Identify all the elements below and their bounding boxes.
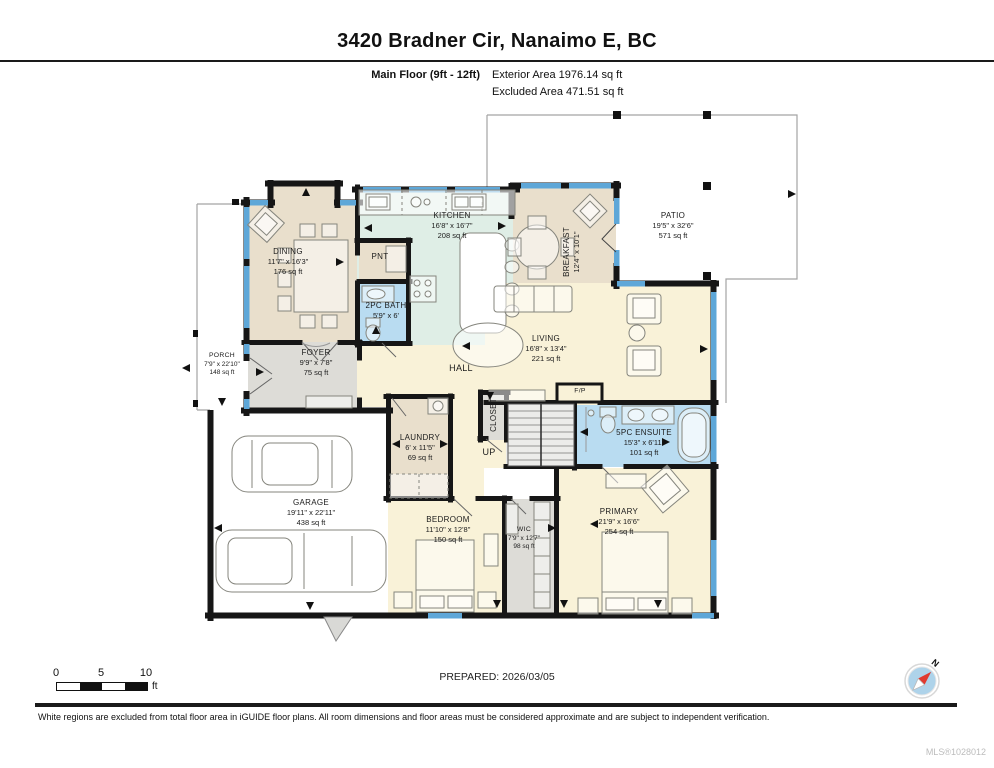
room-label-primary: PRIMARY21'9" x 16'6"254 sq ft — [598, 507, 639, 537]
room-label-porch: PORCH7'9" x 22'10"148 sq ft — [204, 352, 240, 378]
footer-divider — [35, 703, 957, 707]
room-label-patio: PATIO19'5" x 32'6"571 sq ft — [652, 211, 693, 241]
stairs — [508, 404, 574, 466]
room-label-bath: 2PC BATH5'9" x 6' — [366, 301, 407, 321]
floor-plan-drawing — [0, 0, 994, 768]
room-label-laundry: LAUNDRY6' x 11'5"69 sq ft — [400, 433, 440, 463]
room-label-ensuite: 5PC ENSUITE15'3" x 6'11"101 sq ft — [616, 428, 672, 458]
scale-segment — [102, 683, 125, 690]
room-label-hall: HALL — [449, 363, 473, 375]
stairs-up-label: UP — [482, 447, 495, 459]
room-label-living: LIVING16'8" x 13'4"221 sq ft — [525, 334, 566, 364]
room-label-bedroom: BEDROOM11'10" x 12'8"150 sq ft — [426, 515, 471, 545]
room-label-closet: CLOSET — [489, 398, 499, 432]
scale-bar — [56, 682, 148, 691]
room-label-pantry: PNT — [372, 252, 389, 262]
scale-segment — [57, 683, 80, 690]
room-label-dining: DINING11'7" x 16'3"176 sq ft — [268, 247, 309, 277]
scale-segment — [125, 683, 148, 690]
scale-segment — [80, 683, 103, 690]
fireplace-label: F/P — [574, 388, 585, 397]
disclaimer-text: White regions are excluded from total fl… — [38, 712, 968, 722]
room-label-breakfast: BREAKFAST12'4" x 10'1" — [562, 227, 582, 277]
mls-number: MLS®1028012 — [830, 747, 986, 757]
room-label-garage: GARAGE19'11" x 22'11"438 sq ft — [287, 498, 335, 528]
floor-plan-page: 3420 Bradner Cir, Nanaimo E, BC Main Flo… — [0, 0, 994, 768]
room-label-foyer: FOYER9'9" x 7'8"75 sq ft — [300, 348, 333, 378]
compass-icon — [898, 657, 946, 705]
room-label-kitchen: KITCHEN16'8" x 16'7"208 sq ft — [431, 211, 472, 241]
prepared-date: PREPARED: 2026/03/05 — [0, 671, 994, 683]
room-label-wic: WIC7'9" x 12'7"98 sq ft — [508, 526, 540, 552]
